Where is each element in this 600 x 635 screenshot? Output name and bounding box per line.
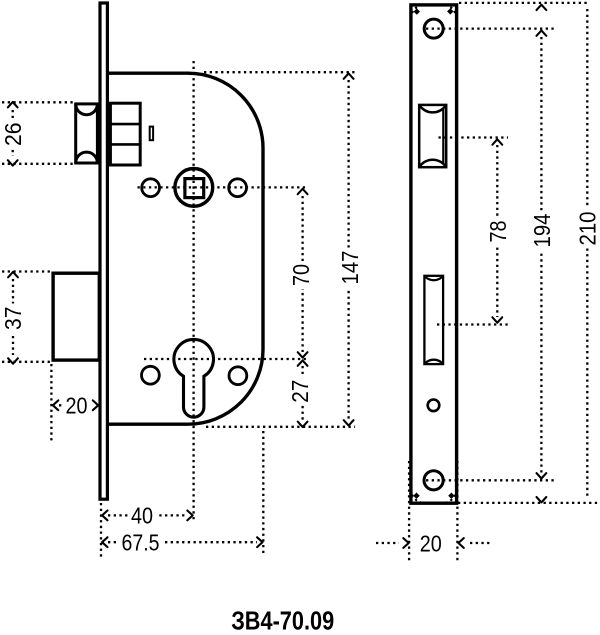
- svg-text:26: 26: [0, 122, 26, 146]
- svg-text:210: 210: [575, 212, 600, 246]
- svg-text:40: 40: [131, 503, 153, 529]
- svg-text:67.5: 67.5: [122, 529, 160, 555]
- svg-text:20: 20: [420, 530, 442, 556]
- svg-text:70: 70: [288, 264, 314, 286]
- svg-text:20: 20: [66, 393, 88, 419]
- svg-text:27: 27: [287, 380, 313, 403]
- svg-text:78: 78: [485, 221, 511, 243]
- svg-text:ЗВ4-70.09: ЗВ4-70.09: [231, 608, 334, 635]
- svg-text:147: 147: [337, 251, 363, 285]
- svg-text:37: 37: [0, 306, 26, 330]
- svg-text:194: 194: [529, 214, 555, 248]
